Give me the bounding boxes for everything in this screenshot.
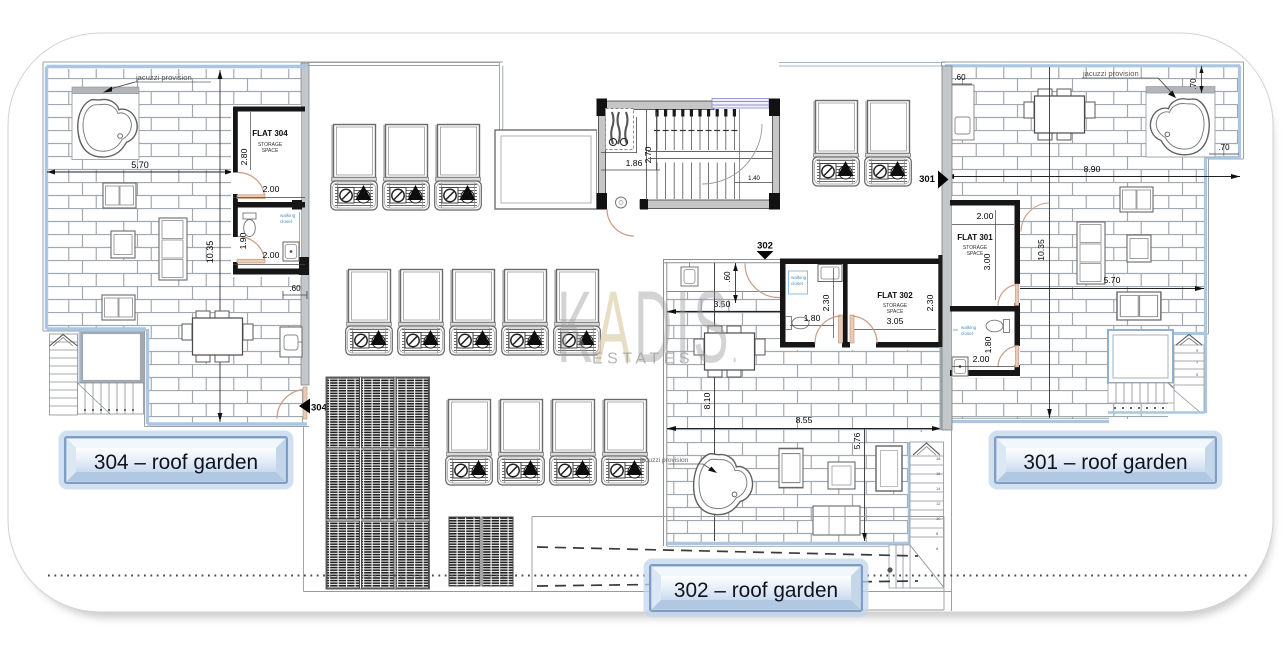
svg-text:closet: closet (791, 281, 804, 286)
svg-text:14: 14 (936, 486, 941, 491)
svg-text:3.00: 3.00 (982, 253, 992, 270)
svg-text:304 – roof garden: 304 – roof garden (94, 451, 258, 474)
svg-text:FLAT 302: FLAT 302 (877, 291, 913, 300)
svg-text:5.76: 5.76 (852, 432, 862, 449)
svg-text:3.05: 3.05 (887, 316, 904, 326)
svg-text:8.55: 8.55 (796, 415, 813, 425)
svg-text:302 – roof garden: 302 – roof garden (674, 579, 838, 602)
svg-text:10.35: 10.35 (205, 241, 215, 264)
svg-text:2.00: 2.00 (263, 250, 280, 260)
svg-text:closet: closet (280, 219, 293, 224)
svg-text:closet: closet (961, 331, 974, 336)
svg-text:2.00: 2.00 (263, 184, 280, 194)
svg-text:ESTATES: ESTATES (592, 351, 694, 368)
svg-text:1.40: 1.40 (748, 176, 760, 182)
svg-text:FLAT 304: FLAT 304 (252, 129, 288, 138)
svg-text:2.30: 2.30 (925, 294, 935, 311)
svg-text:304: 304 (311, 403, 328, 414)
svg-text:12: 12 (936, 501, 941, 506)
svg-text:2.80: 2.80 (239, 148, 249, 165)
svg-text:1.80: 1.80 (804, 313, 821, 323)
svg-text:10.35: 10.35 (1036, 239, 1046, 261)
svg-text:8.90: 8.90 (1084, 164, 1101, 174)
svg-text:2.70: 2.70 (643, 146, 653, 163)
svg-text:1.86: 1.86 (626, 158, 643, 168)
svg-text:.70: .70 (1189, 78, 1198, 90)
svg-text:jacuzzi provision: jacuzzi provision (1082, 69, 1139, 78)
svg-text:16: 16 (936, 471, 941, 476)
svg-text:2.00: 2.00 (977, 211, 994, 221)
svg-text:18: 18 (936, 456, 941, 461)
svg-text:302: 302 (757, 241, 773, 252)
svg-text:FLAT 301: FLAT 301 (957, 233, 993, 242)
svg-text:301: 301 (919, 174, 936, 185)
svg-text:jacuzzi provision: jacuzzi provision (639, 457, 689, 464)
svg-text:SPACE: SPACE (262, 148, 279, 154)
svg-text:.70: .70 (1218, 143, 1230, 152)
svg-text:5.70: 5.70 (131, 160, 149, 170)
svg-text:walking: walking (791, 275, 807, 280)
svg-text:.60: .60 (289, 284, 301, 293)
svg-text:8.10: 8.10 (702, 392, 712, 409)
svg-text:1.80: 1.80 (983, 336, 993, 353)
svg-text:.60: .60 (954, 73, 966, 82)
svg-text:SPACE: SPACE (887, 309, 904, 315)
svg-text:301 – roof garden: 301 – roof garden (1023, 451, 1187, 474)
svg-text:2.30: 2.30 (821, 294, 831, 311)
svg-text:5.70: 5.70 (1104, 275, 1121, 285)
svg-text:walking: walking (280, 213, 296, 218)
svg-text:2.00: 2.00 (973, 354, 990, 364)
svg-text:jacuzzi provision: jacuzzi provision (135, 73, 192, 82)
svg-text:walking: walking (961, 325, 977, 330)
